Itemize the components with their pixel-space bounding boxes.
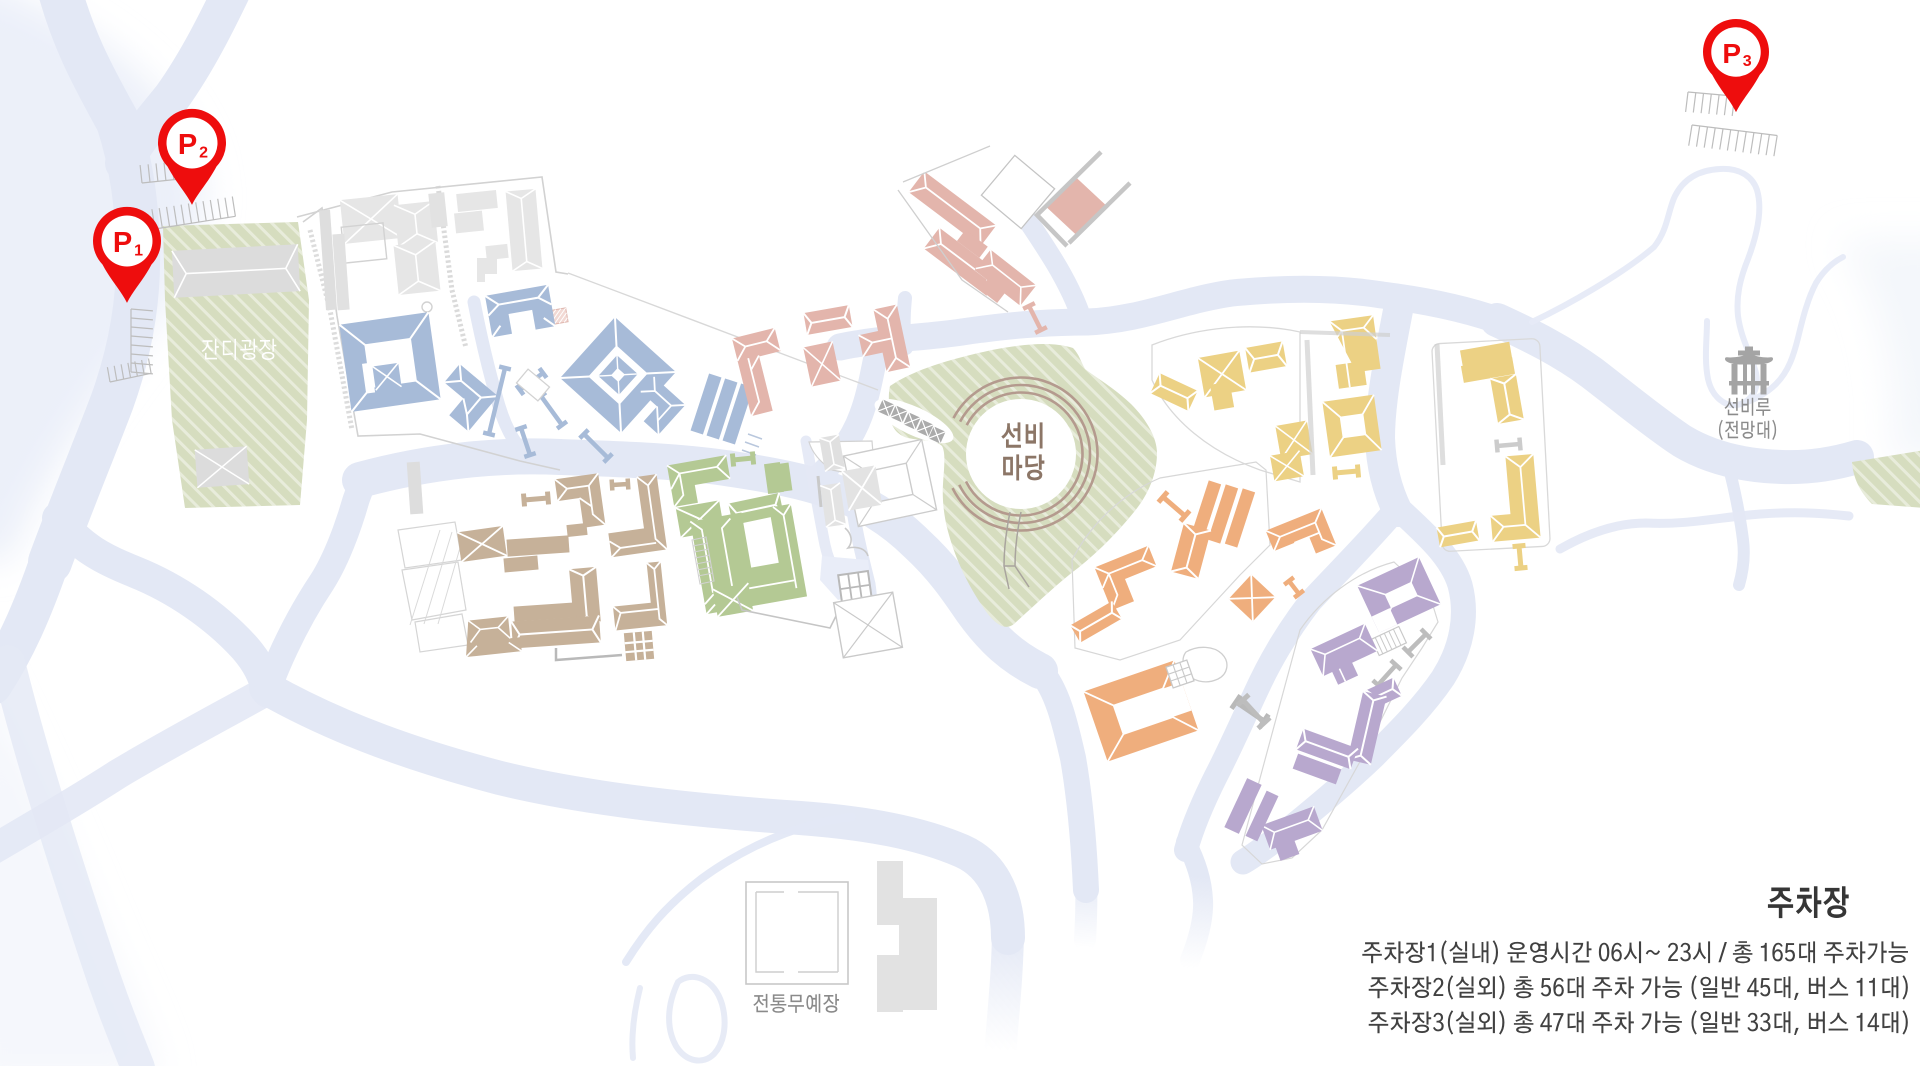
svg-text:P: P (113, 227, 132, 259)
svg-text:2: 2 (199, 144, 208, 161)
svg-text:P: P (178, 129, 197, 161)
svg-text:P: P (1722, 38, 1741, 69)
svg-text:1: 1 (134, 242, 143, 259)
svg-text:3: 3 (1743, 53, 1752, 70)
